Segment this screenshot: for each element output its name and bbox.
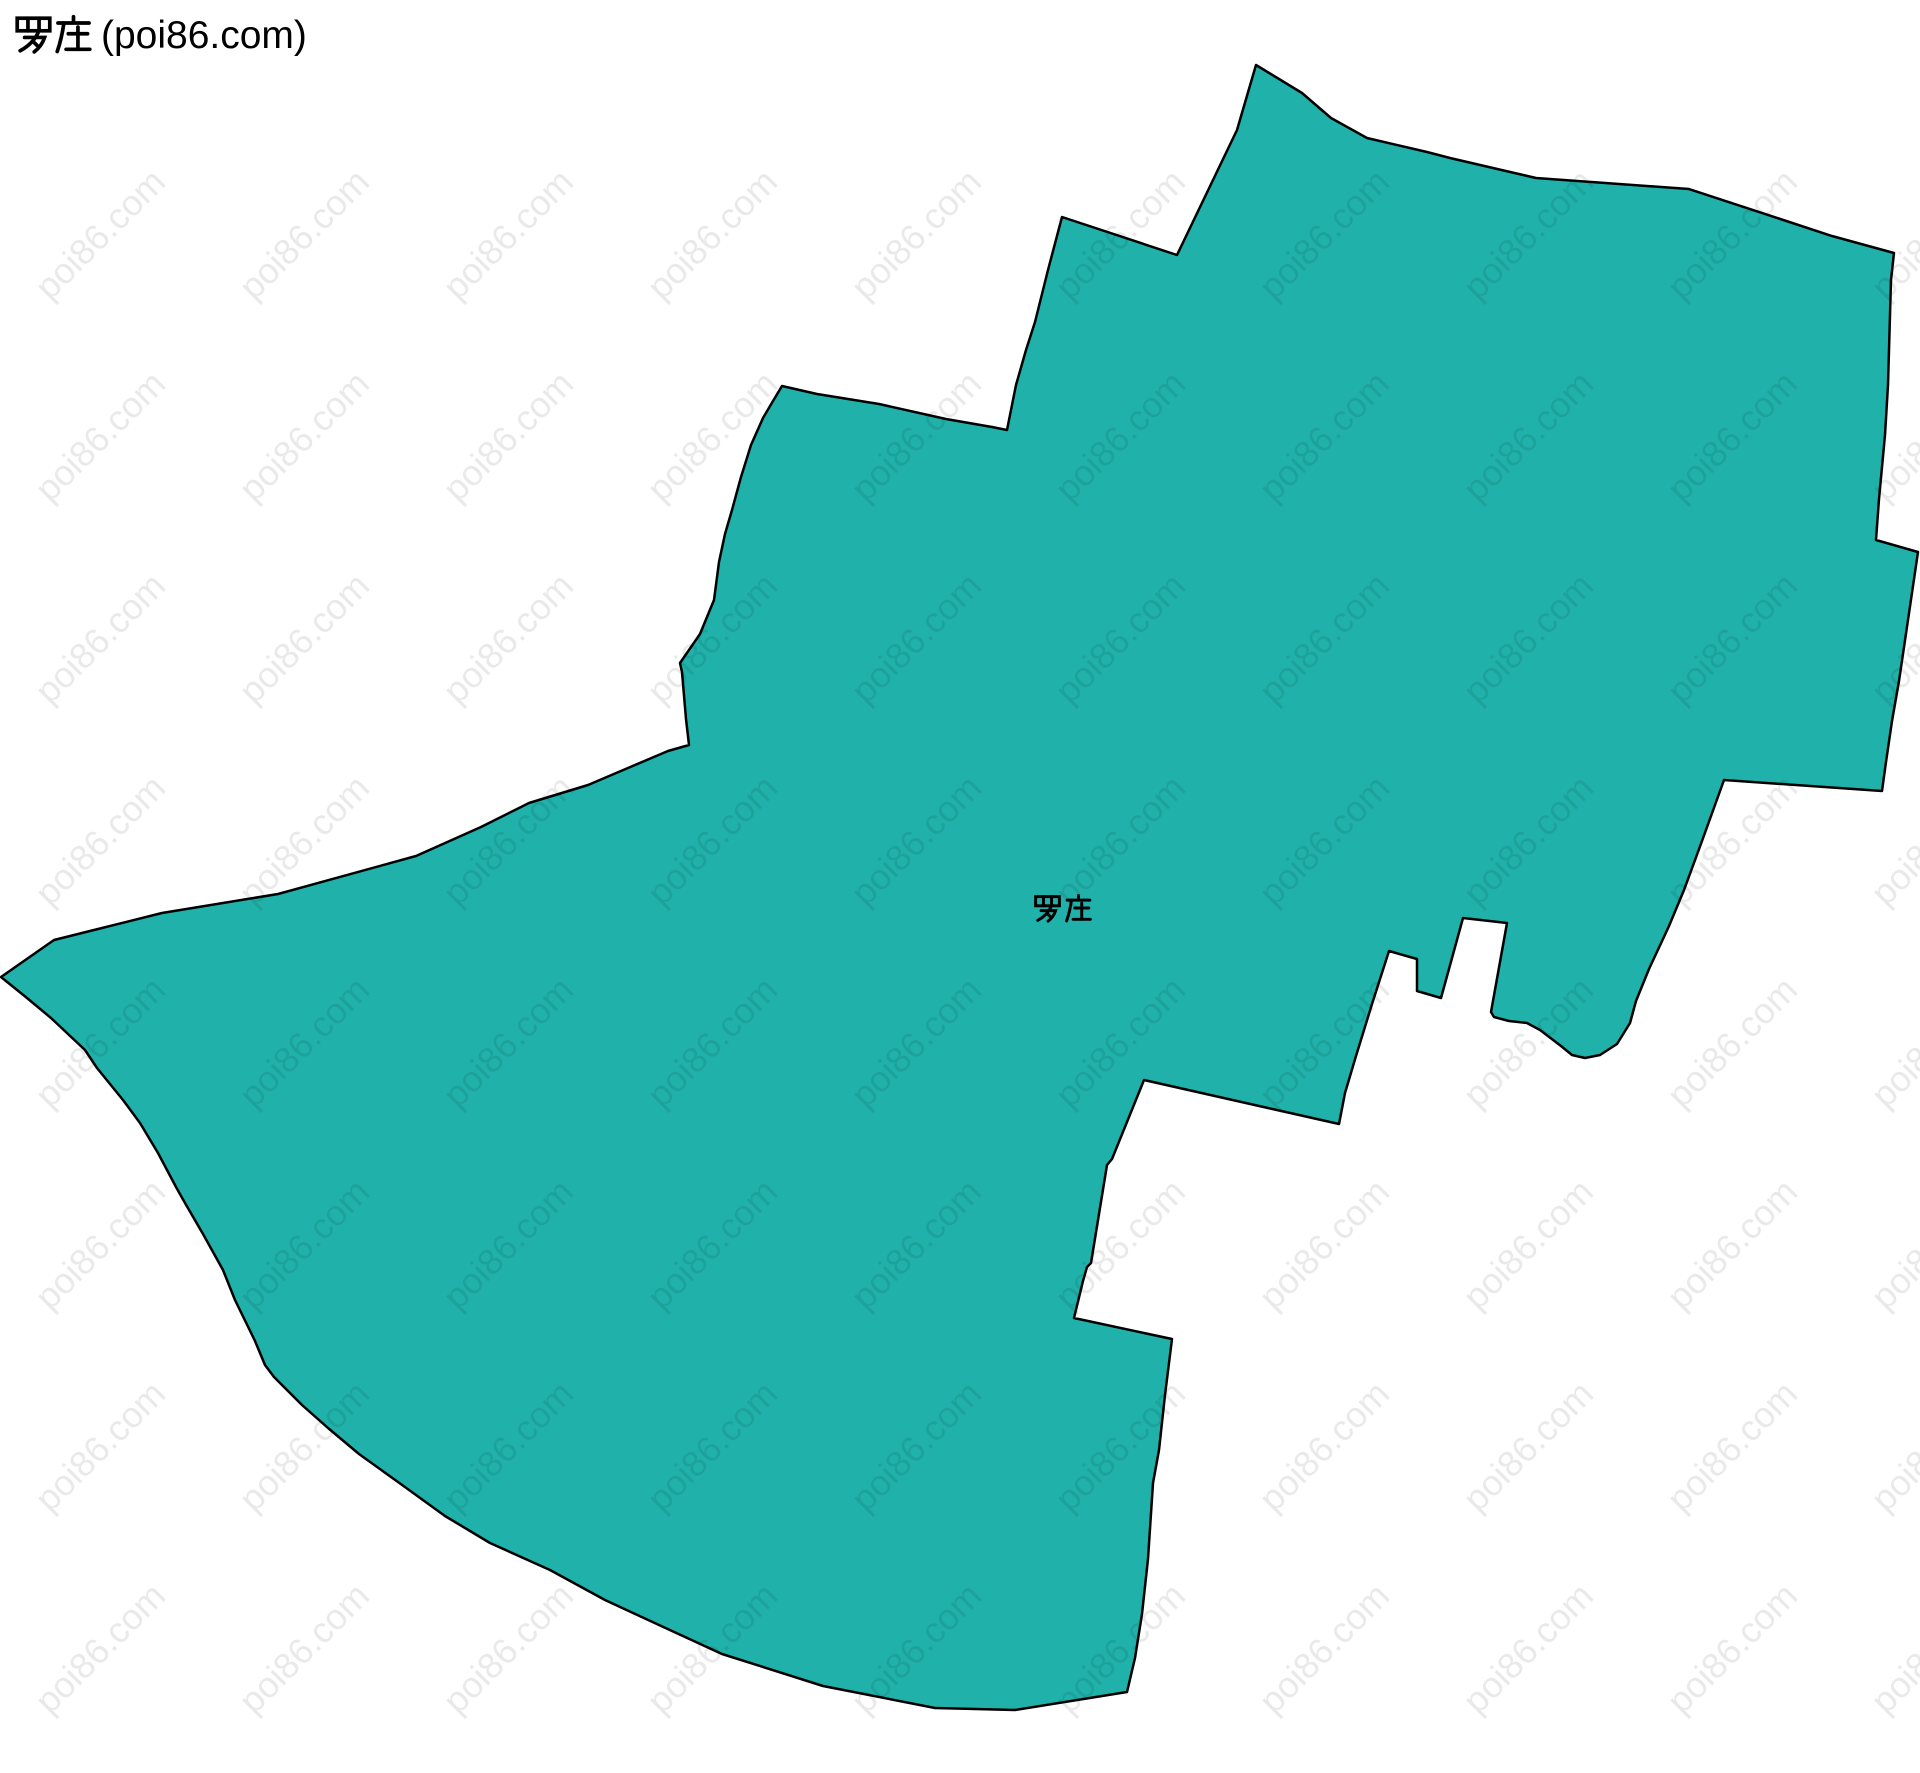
svg-text:poi86.com: poi86.com xyxy=(843,161,989,307)
svg-text:poi86.com: poi86.com xyxy=(1659,1171,1805,1317)
svg-text:poi86.com: poi86.com xyxy=(27,1373,173,1519)
svg-text:poi86.com: poi86.com xyxy=(231,565,377,711)
svg-text:poi86.com: poi86.com xyxy=(27,363,173,509)
svg-text:poi86.com: poi86.com xyxy=(435,565,581,711)
svg-text:poi86.com: poi86.com xyxy=(435,1575,581,1721)
svg-text:poi86.com: poi86.com xyxy=(1659,969,1805,1115)
svg-text:poi86.com: poi86.com xyxy=(1251,1575,1397,1721)
svg-text:poi86.com: poi86.com xyxy=(1863,1373,1920,1519)
svg-text:poi86.com: poi86.com xyxy=(1863,1575,1920,1721)
svg-text:poi86.com: poi86.com xyxy=(1659,1373,1805,1519)
svg-text:poi86.com: poi86.com xyxy=(1863,969,1920,1115)
svg-text:poi86.com: poi86.com xyxy=(1251,1373,1397,1519)
svg-text:poi86.com: poi86.com xyxy=(1863,1171,1920,1317)
svg-text:poi86.com: poi86.com xyxy=(231,363,377,509)
svg-text:poi86.com: poi86.com xyxy=(27,565,173,711)
svg-text:poi86.com: poi86.com xyxy=(435,161,581,307)
svg-text:poi86.com: poi86.com xyxy=(639,161,785,307)
svg-text:poi86.com: poi86.com xyxy=(27,1171,173,1317)
svg-text:poi86.com: poi86.com xyxy=(1251,1171,1397,1317)
svg-text:poi86.com: poi86.com xyxy=(1659,1575,1805,1721)
svg-text:poi86.com: poi86.com xyxy=(1455,1575,1601,1721)
svg-text:poi86.com: poi86.com xyxy=(27,161,173,307)
svg-text:poi86.com: poi86.com xyxy=(27,767,173,913)
svg-text:poi86.com: poi86.com xyxy=(231,161,377,307)
svg-text:poi86.com: poi86.com xyxy=(1863,161,1920,307)
svg-text:poi86.com: poi86.com xyxy=(231,1575,377,1721)
svg-text:poi86.com: poi86.com xyxy=(1455,1373,1601,1519)
svg-text:(poi86.com): (poi86.com) xyxy=(101,14,307,57)
svg-text:poi86.com: poi86.com xyxy=(1455,1171,1601,1317)
svg-text:poi86.com: poi86.com xyxy=(27,1575,173,1721)
svg-text:poi86.com: poi86.com xyxy=(435,363,581,509)
